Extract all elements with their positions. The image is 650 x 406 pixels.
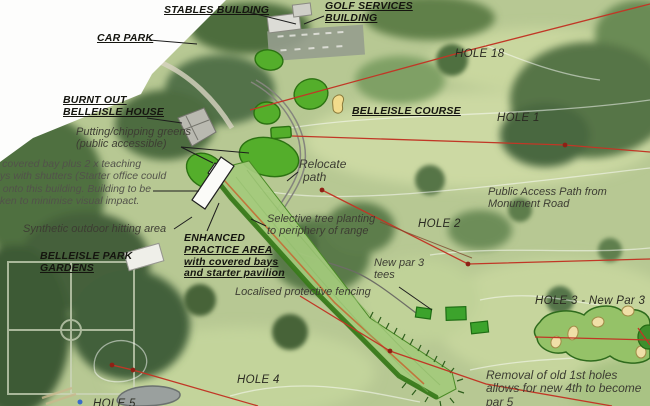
label-belleisle-course: BELLEISLE COURSE	[352, 106, 461, 118]
label-golf-services-building: GOLF SERVICES BUILDING	[325, 1, 413, 25]
label-synthetic-area: Synthetic outdoor hitting area	[23, 223, 166, 235]
label-public-access-path: Public Access Path from Monument Road	[488, 186, 607, 211]
label-car-park: CAR PARK	[97, 33, 153, 45]
label-new-par3-tees: New par 3 tees	[374, 257, 424, 282]
label-putting-greens: Putting/chipping greens (public accessib…	[76, 126, 191, 151]
label-hole-4: HOLE 4	[237, 374, 280, 387]
label-relocate-path: Relocate path	[299, 158, 346, 185]
label-enhanced-practice-area: ENHANCED PRACTICE AREA with covered bays…	[184, 233, 285, 280]
label-localised-fencing: Localised protective fencing	[235, 286, 371, 298]
sand-marker	[333, 95, 344, 113]
label-hole-18: HOLE 18	[455, 48, 504, 61]
label-hole-3: HOLE 3 - New Par 3	[535, 295, 645, 308]
label-covered-bay-note: x covered bay plus 2 x teaching ays with…	[0, 158, 166, 207]
label-burnt-out-house: BURNT OUT BELLEISLE HOUSE	[63, 95, 164, 119]
masterplan-map: STABLES BUILDING GOLF SERVICES BUILDING …	[0, 0, 650, 406]
label-hole-5: HOLE 5	[93, 398, 136, 406]
label-park-gardens: BELLEISLE PARK GARDENS	[40, 251, 132, 275]
label-hole-2: HOLE 2	[418, 218, 461, 231]
label-hole-1: HOLE 1	[497, 112, 540, 125]
blue-marker	[78, 400, 83, 405]
label-removal-note: Removal of old 1st holes allows for new …	[486, 369, 641, 406]
label-stables-building: STABLES BUILDING	[164, 5, 269, 17]
